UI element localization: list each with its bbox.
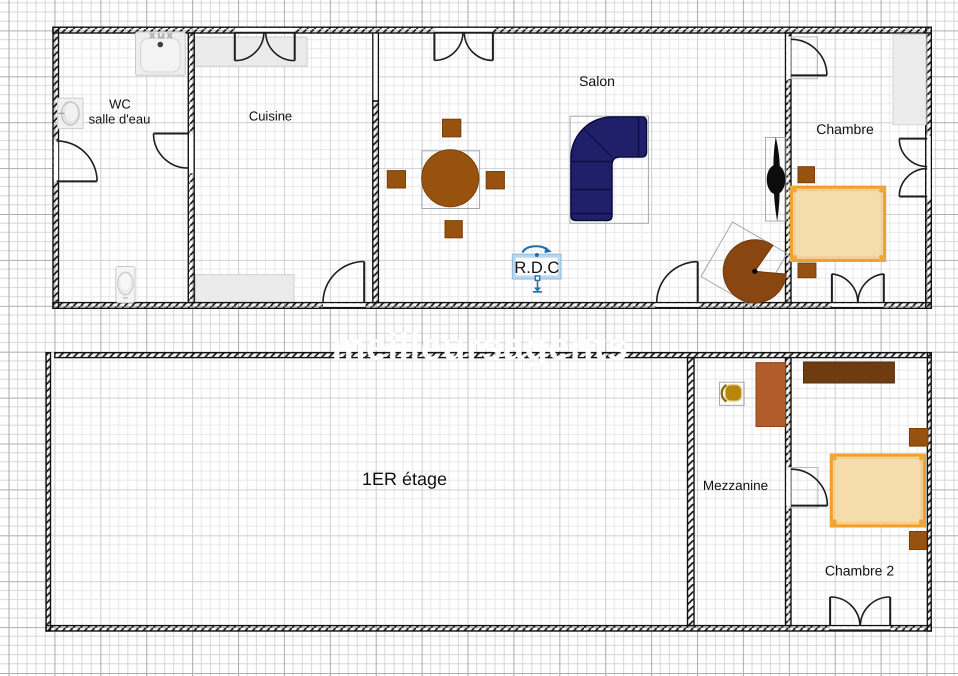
svg-text:R.D.C: R.D.C [514,259,559,277]
svg-text:Salon: Salon [579,73,615,89]
svg-text:Chambre 2: Chambre 2 [825,563,894,579]
svg-text:WC: WC [109,97,131,112]
svg-text:Chambre: Chambre [816,121,874,137]
svg-text:1ER étage: 1ER étage [362,469,447,489]
svg-text:Mezzanine: Mezzanine [703,478,768,493]
svg-text:salle d'eau: salle d'eau [89,112,151,127]
svg-text:meilleursagents: meilleursagents [332,327,629,369]
svg-text:Cuisine: Cuisine [249,109,292,124]
